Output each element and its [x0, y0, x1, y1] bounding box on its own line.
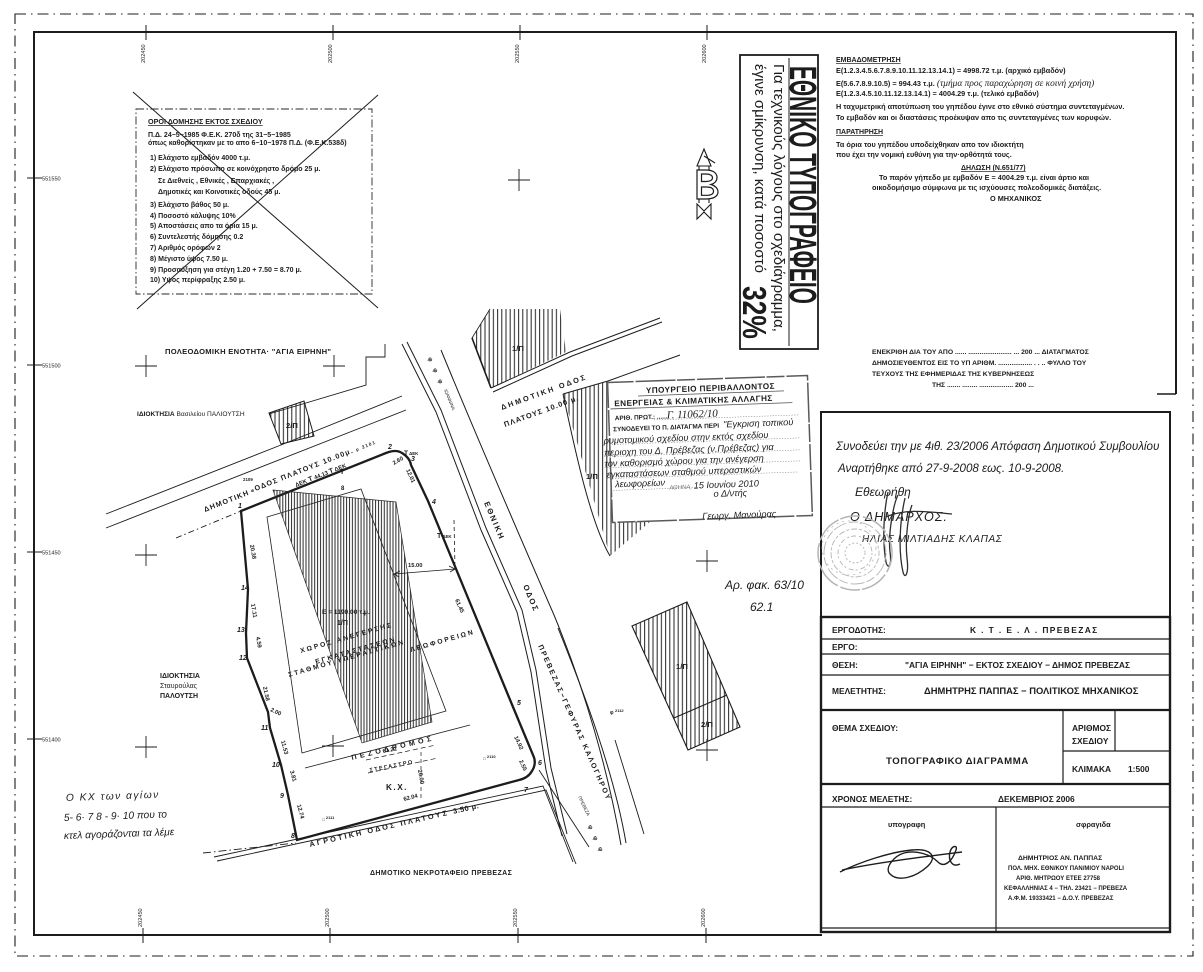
svg-text:Ε(5.6.7.8.9.10.5) = 994.43 τ.μ: Ε(5.6.7.8.9.10.5) = 994.43 τ.μ. (τμήμα π… [836, 78, 1094, 89]
svg-text:ΚΛΙΜΑΚΑ: ΚΛΙΜΑΚΑ [1072, 764, 1111, 774]
svg-text:ΧΡΟΝΟΣ ΜΕΛΕΤΗΣ:: ΧΡΟΝΟΣ ΜΕΛΕΤΗΣ: [832, 794, 912, 804]
svg-text:1/Π: 1/Π [337, 620, 348, 627]
svg-text:Σταυρούλας: Σταυρούλας [160, 682, 198, 690]
svg-text:ΠΟΛΕΟΔΟΜΙΚΗ ΕΝΟΤΗΤΑ· "ΑΓΙΑ Ε: ΠΟΛΕΟΔΟΜΙΚΗ ΕΝΟΤΗΤΑ· "ΑΓΙΑ ΕΙΡΗΝΗ" [165, 347, 331, 356]
svg-text:ΠΑΡΑΤΗΡΗΣΗ: ΠΑΡΑΤΗΡΗΣΗ [836, 129, 883, 136]
svg-text:ΘΕΣΗ:: ΘΕΣΗ: [832, 660, 858, 670]
svg-text:ΘΕΜΑ ΣΧΕΔΙΟΥ:: ΘΕΜΑ ΣΧΕΔΙΟΥ: [832, 723, 898, 733]
svg-text:32%: 32% [735, 286, 771, 339]
svg-text:551500: 551500 [42, 364, 61, 370]
svg-text:Τ ΔΕΚ: Τ ΔΕΚ [404, 450, 419, 457]
svg-text:4: 4 [431, 499, 436, 506]
svg-text:ΔΕΚΕΜΒΡΙΟΣ 2006: ΔΕΚΕΜΒΡΙΟΣ 2006 [998, 794, 1075, 804]
svg-text:ΕΡΓΟ:: ΕΡΓΟ: [832, 642, 858, 652]
svg-text:2: 2 [387, 444, 392, 451]
svg-text:ΙΔΙΟΚΤΗΣΙΑ Βασιλείου ΠΑΛΙΟΥΤΣΗ: ΙΔΙΟΚΤΗΣΙΑ Βασιλείου ΠΑΛΙΟΥΤΣΗ [137, 410, 245, 418]
svg-text:10) Υψος περίφραξης 2.50 μ.: 10) Υψος περίφραξης 2.50 μ. [150, 277, 245, 284]
svg-text:202550: 202550 [513, 908, 519, 927]
svg-text:Εθεωρήθη: Εθεωρήθη [855, 485, 911, 499]
svg-text:Ε(1.2.3.4.5.10.11.12.13.14.1): Ε(1.2.3.4.5.10.11.12.13.14.1) = 4004.29 … [836, 89, 1039, 98]
svg-text:ΕΝΕΚΡΙΘΗ ΔΙΑ ΤΟΥ ΑΠΟ ......: ΕΝΕΚΡΙΘΗ ΔΙΑ ΤΟΥ ΑΠΟ ...... ............… [872, 349, 1089, 356]
svg-text:8) Μέγιστο ύψος 7.50 μ.: 8) Μέγιστο ύψος 7.50 μ. [150, 256, 228, 263]
svg-text:202500: 202500 [325, 908, 331, 927]
svg-text:ΚΕΦΑΛΛΗΝΙΑΣ 4 − ΤΗΛ. 23421 − Π: ΚΕΦΑΛΛΗΝΙΑΣ 4 − ΤΗΛ. 23421 − ΠΡΕΒΕΖΑ [1004, 886, 1128, 892]
svg-text:1/Π: 1/Π [676, 662, 688, 671]
svg-text:1/Π: 1/Π [586, 472, 598, 481]
svg-text:ΤΗΣ ....... ........ .......: ΤΗΣ ....... ........ .................. … [932, 382, 1034, 389]
svg-text:ΔΗΜΟΣΙΕΥΘΕΝΤΟΣ ΕΙΣ ΤΟ ΥΠ Α: ΔΗΜΟΣΙΕΥΘΕΝΤΟΣ ΕΙΣ ΤΟ ΥΠ ΑΡΙΘΜ. ........… [872, 360, 1087, 367]
svg-text:2/Π: 2/Π [286, 421, 298, 430]
svg-text:1) Ελάχιστο εμβαδόν 4000 τ.μ.: 1) Ελάχιστο εμβαδόν 4000 τ.μ. [150, 154, 250, 162]
svg-text:ΔΗΛΩΣΗ (Ν.651/77): ΔΗΛΩΣΗ (Ν.651/77) [961, 165, 1026, 172]
svg-text:ΠΟΛ. ΜΗΧ. ΕΘΝ/ΚΟΥ ΠΑΝ/ΜΙΟΥ N: ΠΟΛ. ΜΗΧ. ΕΘΝ/ΚΟΥ ΠΑΝ/ΜΙΟΥ NAPOLI [1008, 866, 1124, 872]
svg-text:2/Π: 2/Π [701, 720, 713, 729]
svg-text:ΔΗΜΗΤΡΗΣ ΠΑΠΠΑΣ − ΠΟΛΙΤΙΚΟΣ ΜΗ: ΔΗΜΗΤΡΗΣ ΠΑΠΠΑΣ − ΠΟΛΙΤΙΚΟΣ ΜΗΧΑΝΙΚΟΣ [924, 685, 1139, 696]
svg-text:1: 1 [238, 503, 242, 510]
svg-text:9) Προσαύξηση για στέγη 1.20 +: 9) Προσαύξηση για στέγη 1.20 + 7.50 = 8.… [150, 267, 302, 274]
svg-text:Τα όρια του γηπέδου υποδείχθηκ: Τα όρια του γηπέδου υποδείχθηκαν απο τον… [836, 140, 1024, 149]
svg-text:8: 8 [291, 833, 295, 840]
svg-text:Δημοτικές και Κοινοτικές οδούς: Δημοτικές και Κοινοτικές οδούς 45 μ. [158, 189, 281, 196]
svg-text:Σε Διεθνείς , Εθνικές , Επαρχι: Σε Διεθνείς , Εθνικές , Επαρχιακές , [158, 178, 274, 185]
svg-text:ΑΡΙΘΜΟΣ: ΑΡΙΘΜΟΣ [1072, 723, 1111, 733]
svg-text:ΜΕΛΕΤΗΤΗΣ:: ΜΕΛΕΤΗΤΗΣ: [832, 686, 886, 696]
svg-text:202450: 202450 [138, 908, 144, 927]
svg-text:ο Δ/ντής: ο Δ/ντής [713, 488, 747, 499]
svg-text:όπως καθορίστηκαν με το απο 6−: όπως καθορίστηκαν με το απο 6−10−1978 Π.… [148, 140, 347, 147]
svg-text:που έχει την νομική ευθύνη για: που έχει την νομική ευθύνη για την·ορθότ… [836, 150, 1012, 159]
svg-text:Τ ΔΕΚ: Τ ΔΕΚ [437, 533, 452, 540]
svg-text:5: 5 [517, 700, 521, 707]
svg-text:Κ . Τ . Ε . Λ . ΠΡΕΒΕΖΑΣ: Κ . Τ . Ε . Λ . ΠΡΕΒΕΖΑΣ [970, 625, 1099, 635]
svg-text:οικοδομήσιμο σύμφωνα με τις ισ: οικοδομήσιμο σύμφωνα με τις ισχύουσες πο… [872, 183, 1101, 192]
svg-text:ΤΟΠΟΓΡΑΦΙΚΟ ΔΙΑΓΡΑΜΜΑ: ΤΟΠΟΓΡΑΦΙΚΟ ΔΙΑΓΡΑΜΜΑ [886, 756, 1029, 767]
svg-text:202450: 202450 [141, 44, 147, 63]
svg-text:202600: 202600 [702, 44, 708, 63]
svg-text:ΠΑΛΟΥΤΣΗ: ΠΑΛΟΥΤΣΗ [160, 693, 198, 700]
svg-text:έγινε σμίκρυνση, κατά ποσοστό: έγινε σμίκρυνση, κατά ποσοστό [751, 64, 768, 273]
svg-text:1/Π: 1/Π [512, 344, 524, 353]
svg-text:6: 6 [538, 760, 542, 767]
svg-text:ΔΗΜΗΤΡΙΟΣ ΑΝ. ΠΑΠΠΑΣ: ΔΗΜΗΤΡΙΟΣ ΑΝ. ΠΑΠΠΑΣ [1018, 855, 1102, 862]
svg-text:ΔΗΜΟΤΙΚΟ ΝΕΚΡΟΤΑΦΕΙΟ ΠΡΕΒΕΖΑ: ΔΗΜΟΤΙΚΟ ΝΕΚΡΟΤΑΦΕΙΟ ΠΡΕΒΕΖΑΣ [370, 870, 512, 877]
svg-text:Ο ΜΗΧΑΝΙΚΟΣ: Ο ΜΗΧΑΝΙΚΟΣ [990, 194, 1042, 203]
svg-text:ΙΔΙΟΚΤΗΣΙΑ: ΙΔΙΟΚΤΗΣΙΑ [160, 673, 200, 680]
svg-text:Α.Φ.Μ. 19333421 − Δ.Ο.Υ. ΠΡΕΒΕ: Α.Φ.Μ. 19333421 − Δ.Ο.Υ. ΠΡΕΒΕΖΑΣ [1008, 896, 1114, 902]
svg-text:4) Ποσοστό κάλυψης 10%: 4) Ποσοστό κάλυψης 10% [150, 212, 236, 220]
svg-text:12: 12 [239, 655, 247, 662]
svg-text:3: 3 [411, 456, 415, 463]
svg-text:Η ταχυμετρική αποτύπωση του γη: Η ταχυμετρική αποτύπωση του γηπέδου έγιν… [836, 102, 1124, 111]
svg-text:Ε = 1190.00 τ.μ.: Ε = 1190.00 τ.μ. [322, 609, 370, 616]
svg-text:9: 9 [280, 793, 284, 800]
svg-text:202600: 202600 [701, 908, 707, 927]
svg-text:Αρ. φακ. 63/10: Αρ. φακ. 63/10 [724, 578, 804, 592]
svg-text:ΣΧΕΔΙΟΥ: ΣΧΕΔΙΟΥ [1072, 736, 1109, 746]
svg-text:σφραγιδα: σφραγιδα [1076, 820, 1111, 829]
svg-text:Π.Δ. 24−5−1985 Φ.Ε.Κ. 270δ της: Π.Δ. 24−5−1985 Φ.Ε.Κ. 270δ της 31−5−1985 [148, 132, 291, 139]
svg-text:2109: 2109 [243, 477, 253, 482]
svg-text:λεωφορείων: λεωφορείων [614, 478, 666, 490]
svg-text:υπογραφη: υπογραφη [888, 820, 926, 829]
svg-text:202550: 202550 [515, 44, 521, 63]
svg-text:ΑΡΙΘ. ΜΗΤΡΩΟΥ ΕΤΕΕ 27758: ΑΡΙΘ. ΜΗΤΡΩΟΥ ΕΤΕΕ 27758 [1016, 876, 1101, 882]
svg-text:6) Συντελεστής δόμησης 0.2: 6) Συντελεστής δόμησης 0.2 [150, 233, 243, 241]
svg-text:7) Αριθμός ορόφων 2: 7) Αριθμός ορόφων 2 [150, 245, 221, 252]
svg-text:13: 13 [237, 627, 245, 634]
svg-text:Τ: Τ [340, 469, 345, 476]
svg-text:202500: 202500 [328, 44, 334, 63]
svg-text:Κ.Χ.: Κ.Χ. [386, 783, 408, 792]
svg-text:551400: 551400 [42, 738, 61, 744]
svg-text:15.00: 15.00 [408, 563, 423, 569]
svg-text:551450: 551450 [42, 551, 61, 557]
svg-text:ΕΡΓΟΔΟΤΗΣ:: ΕΡΓΟΔΟΤΗΣ: [832, 625, 886, 635]
svg-text:14: 14 [241, 585, 249, 592]
svg-text:5) Αποστάσεις απο τα όρια 15 μ: 5) Αποστάσεις απο τα όρια 15 μ. [150, 223, 258, 230]
svg-text:11: 11 [261, 725, 268, 732]
svg-text:10: 10 [272, 762, 280, 769]
svg-text:62.1: 62.1 [750, 600, 773, 614]
svg-text:ΤΕΥΧΟΥΣ ΤΗΣ ΕΦΗΜΕΡΙΔΑΣ ΤΗΣ: ΤΕΥΧΟΥΣ ΤΗΣ ΕΦΗΜΕΡΙΔΑΣ ΤΗΣ ΚΥΒΕΡΝΗΣΕΩΣ [872, 371, 1034, 378]
svg-text:ΕΜΒΑΔΟΜΕΤΡΗΣΗ: ΕΜΒΑΔΟΜΕΤΡΗΣΗ [836, 57, 901, 64]
svg-text:Το παρόν γήπεδο με εμβαδόν Ε =: Το παρόν γήπεδο με εμβαδόν Ε = 4004.29 τ… [879, 173, 1089, 182]
svg-text:551550: 551550 [42, 177, 61, 183]
svg-text:1:500: 1:500 [1128, 764, 1150, 774]
svg-text:Συνοδεύει την με 4ιθ. 23/2006: Συνοδεύει την με 4ιθ. 23/2006 Απόφαση Δη… [835, 440, 1159, 453]
svg-text:"ΑΓΙΑ ΕΙΡΗΝΗ" − ΕΚΤΟΣ ΣΧΕΔΙΟΥ: "ΑΓΙΑ ΕΙΡΗΝΗ" − ΕΚΤΟΣ ΣΧΕΔΙΟΥ − ΔΗΜΟΣ ΠΡ… [905, 660, 1130, 670]
svg-text:ΟΡΟΙ ΔΟΜΗΣΗΣ ΕΚΤΟΣ ΣΧΕΔΙΟΥ: ΟΡΟΙ ΔΟΜΗΣΗΣ ΕΚΤΟΣ ΣΧΕΔΙΟΥ [148, 117, 263, 126]
svg-text:Αναρτήθηκε από 27-9-2008 εω: Αναρτήθηκε από 27-9-2008 εως. 10-9-2008. [837, 462, 1064, 475]
svg-text:Το εμβαδόν και οι διαστάσεις: Το εμβαδόν και οι διαστάσεις προέκυψαν α… [836, 113, 1111, 122]
svg-text:3) Ελάχιστο βάθος 50 μ.: 3) Ελάχιστο βάθος 50 μ. [150, 201, 229, 209]
svg-text:Ε(1.2.3.4.5.6.7.8.9.10.11.12.1: Ε(1.2.3.4.5.6.7.8.9.10.11.12.13.14.1) = … [836, 66, 1066, 75]
